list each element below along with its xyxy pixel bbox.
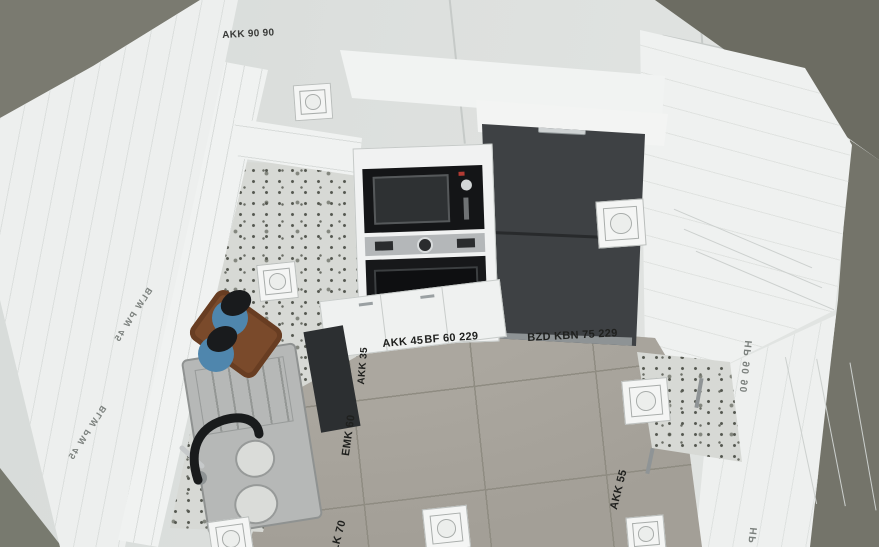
microwave-knob bbox=[461, 179, 472, 190]
oven-knob bbox=[457, 238, 475, 248]
faucet[interactable] bbox=[176, 388, 272, 488]
door-handle bbox=[420, 294, 434, 299]
microwave-indicator bbox=[458, 172, 464, 176]
microwave[interactable] bbox=[362, 165, 484, 233]
ceiling-spotlight[interactable] bbox=[621, 377, 671, 425]
microwave-window bbox=[373, 174, 451, 225]
ceiling-spotlight[interactable] bbox=[256, 261, 299, 302]
viewport-3d[interactable]: AKK 90 90 AKK 45 AKK 35 BF 60 229 BZD KB… bbox=[0, 0, 879, 547]
oven-knob bbox=[417, 237, 434, 254]
ceiling-spotlight[interactable] bbox=[626, 514, 667, 547]
ceiling-spotlight[interactable] bbox=[293, 83, 333, 122]
ceiling-spotlight[interactable] bbox=[595, 198, 646, 248]
cabinet-label-akk9090: AKK 90 90 bbox=[222, 27, 275, 41]
ceiling-spotlight[interactable] bbox=[422, 505, 471, 547]
blue-cup[interactable] bbox=[198, 336, 234, 372]
ceiling-spotlight[interactable] bbox=[207, 516, 254, 547]
oven-knob bbox=[375, 241, 393, 251]
oven-control-panel bbox=[365, 233, 486, 256]
door-handle bbox=[359, 302, 373, 307]
microwave-handle bbox=[463, 197, 469, 219]
